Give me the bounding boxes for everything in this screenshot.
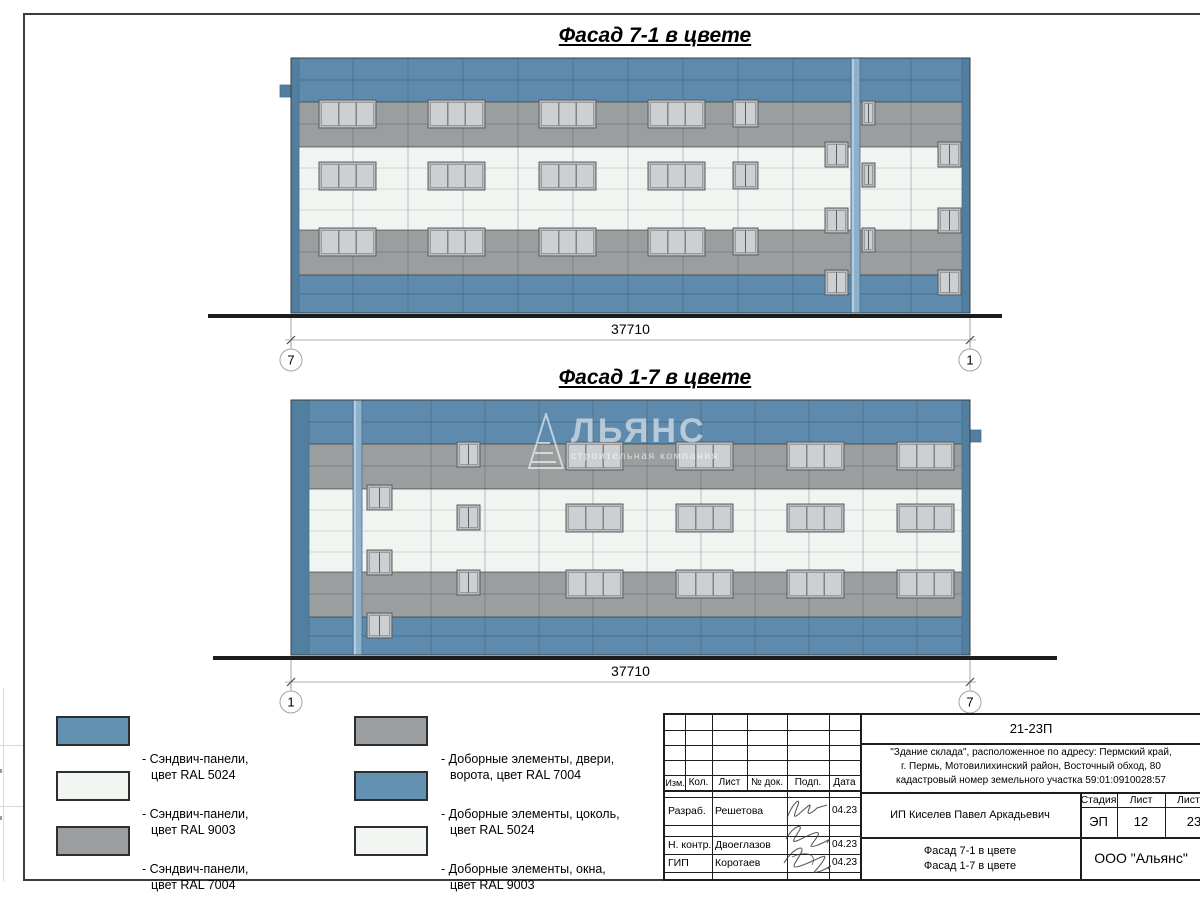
row2-name: Двоеглазов <box>712 836 787 854</box>
stage-label: Стадия <box>1080 792 1117 807</box>
legend-swatch-ral9003 <box>56 771 130 801</box>
sheet-titles: Фасад 7-1 в цвете Фасад 1-7 в цвете <box>860 844 1080 874</box>
col-list: Лист <box>712 775 747 790</box>
legend-label: - Сэндвич-панели,цвет RAL 7004 <box>142 829 248 900</box>
legend-swatch-windows-ral9003 <box>354 826 428 856</box>
frame-left-line <box>23 13 25 881</box>
svg-text:7: 7 <box>287 353 294 368</box>
margin-line <box>3 688 4 881</box>
svg-text:1: 1 <box>966 353 973 368</box>
stage-value: ЭП <box>1080 807 1117 837</box>
facade-1-7-drawing: 3771017 <box>196 396 1066 718</box>
svg-text:7: 7 <box>966 695 973 710</box>
title-block: Изм. Кол. Лист № док. Подп. Дата Разраб.… <box>663 713 1200 881</box>
signature-2 <box>778 821 834 877</box>
project-code: 21-23П <box>860 715 1200 743</box>
line <box>860 743 1200 745</box>
legend-swatch-doors-ral7004 <box>354 716 428 746</box>
svg-text:1: 1 <box>287 695 294 710</box>
col-izm: Изм. <box>665 775 685 790</box>
margin-line <box>0 745 23 746</box>
col-doc: № док. <box>747 775 787 790</box>
facade-7-1-title: Фасад 7-1 в цвете <box>330 24 980 48</box>
legend-label: - Доборные элементы, окна,цвет RAL 9003 <box>441 829 606 900</box>
row3-role: ГИП <box>665 854 712 872</box>
row1-role: Разраб. <box>665 797 712 825</box>
col-data: Дата <box>829 775 860 790</box>
margin-tick <box>0 816 2 820</box>
line <box>665 745 860 746</box>
line <box>665 730 860 731</box>
client-name: ИП Киселев Павел Аркадьевич <box>860 792 1080 837</box>
sheets-value: 23 <box>1165 807 1200 837</box>
sheet-value: 12 <box>1117 807 1165 837</box>
col-podp: Подп. <box>787 775 829 790</box>
legend-swatch-ral5024 <box>56 716 130 746</box>
svg-text:37710: 37710 <box>611 663 650 679</box>
sheets-label: Листов <box>1165 792 1200 807</box>
project-address: "Здание склада", расположенное по адресу… <box>862 746 1200 788</box>
frame-top-line <box>23 13 1200 15</box>
drawing-sheet: Фасад 7-1 в цвете Фасад 1-7 в цвете 3771… <box>0 0 1200 900</box>
svg-text:37710: 37710 <box>611 321 650 337</box>
row3-name: Коротаев <box>712 854 787 872</box>
facade-7-1-drawing: 3771071 <box>196 54 1066 376</box>
legend-swatch-ral7004 <box>56 826 130 856</box>
sheet-label: Лист <box>1117 792 1165 807</box>
line <box>665 760 860 761</box>
col-kol: Кол. <box>685 775 712 790</box>
legend-swatch-plinth-ral5024 <box>354 771 428 801</box>
row2-role: Н. контр. <box>665 836 712 854</box>
company-name: ООО "Альянс" <box>1080 837 1200 879</box>
margin-tick <box>0 769 2 773</box>
row1-name: Решетова <box>712 797 787 825</box>
line <box>665 790 862 792</box>
margin-line <box>0 806 23 807</box>
